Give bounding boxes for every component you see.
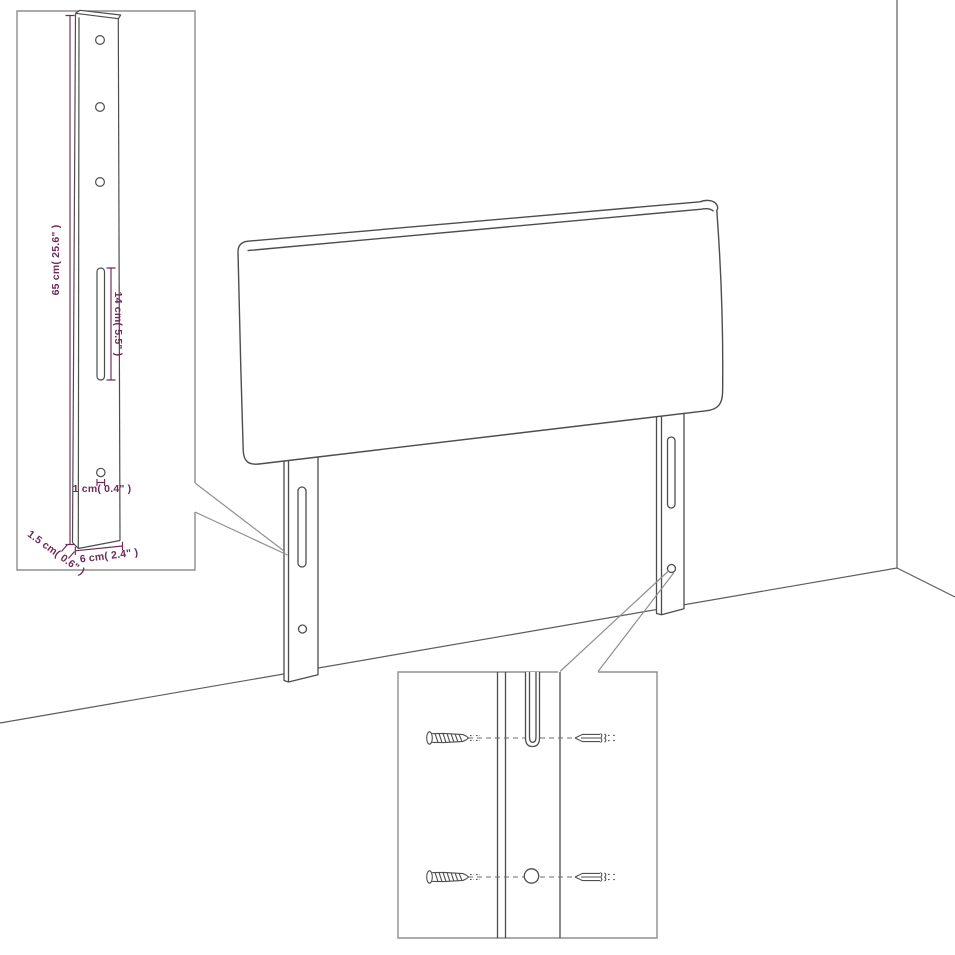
callout-lines bbox=[195, 483, 674, 672]
hole-diameter-label: 1 cm( 0.4" ) bbox=[73, 483, 132, 495]
callout-screw-detail-left bbox=[560, 571, 669, 672]
callout-leg-detail-upper bbox=[195, 483, 284, 551]
left-leg-hole bbox=[299, 625, 307, 633]
headboard-outline bbox=[238, 200, 723, 464]
screw-detail-inset bbox=[398, 672, 657, 938]
diagram-lineart bbox=[0, 0, 955, 955]
slot-height-label: 14 cm( 5.5" ) bbox=[112, 292, 124, 357]
leg-height-label: 65 cm( 25.6" ) bbox=[50, 225, 62, 296]
right-leg-slot bbox=[668, 437, 676, 508]
closeup-hole bbox=[524, 869, 538, 883]
headboard bbox=[238, 200, 723, 464]
leg-detail-inner-edge bbox=[78, 17, 79, 548]
left-leg bbox=[284, 452, 318, 682]
callout-screw-detail-right bbox=[598, 573, 674, 672]
right-leg bbox=[657, 406, 685, 615]
left-leg-slot bbox=[298, 487, 306, 567]
closeup-slot bbox=[526, 672, 540, 747]
floor-line-right bbox=[897, 568, 955, 597]
product-dimension-diagram: 65 cm( 25.6" ) 14 cm( 5.5" ) 1 cm( 0.4" … bbox=[0, 0, 955, 955]
